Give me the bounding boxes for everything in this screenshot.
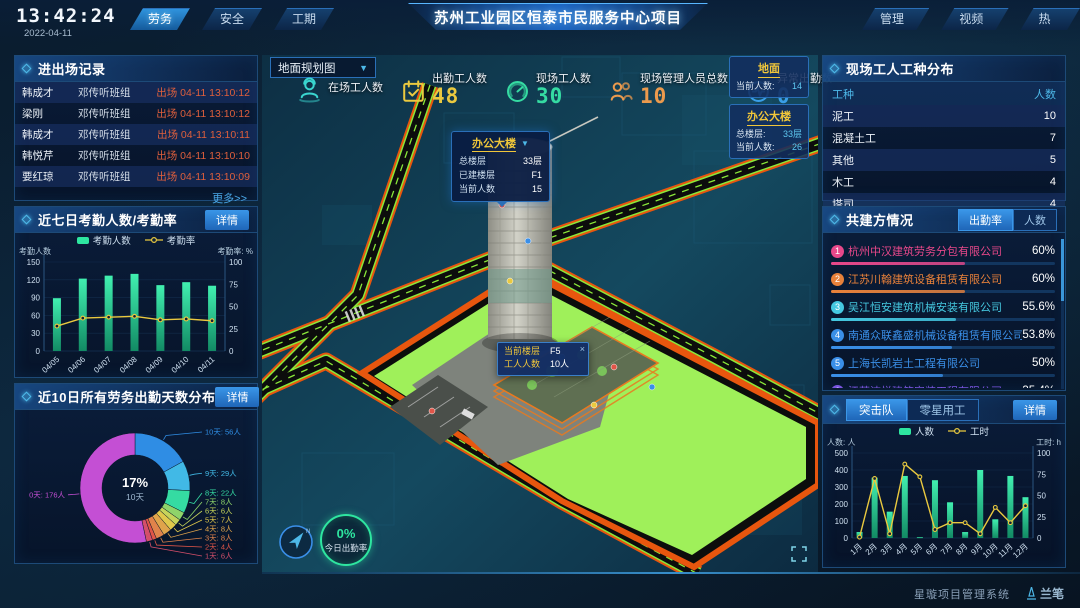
compass-control[interactable]: N xyxy=(277,523,315,561)
tooltip-value: F5 xyxy=(550,345,561,358)
progress-track xyxy=(831,346,1055,349)
svg-text:25: 25 xyxy=(1037,513,1046,522)
svg-text:12月: 12月 xyxy=(1011,542,1030,560)
floor-tooltip[interactable]: × 当前楼层F5 工人人数10人 xyxy=(497,342,589,376)
svg-text:5月: 5月 xyxy=(909,542,924,557)
svg-text:17%: 17% xyxy=(122,475,148,490)
map-badge[interactable]: 办公大楼总楼层:33层当前人数:26 xyxy=(729,104,809,159)
table-row[interactable]: 韩成才邓传听班组出场 04-11 13:10:11 xyxy=(15,124,257,145)
partner-tab[interactable]: 人数 xyxy=(1013,209,1057,231)
vendor-logo: 兰笔 xyxy=(1026,585,1064,602)
rank-badge: 4 xyxy=(831,329,844,342)
stat-gauge: 现场工人数30 xyxy=(504,70,591,107)
rank-badge: 6 xyxy=(831,385,844,389)
svg-text:考勤率: %: 考勤率: % xyxy=(217,247,253,256)
svg-text:500: 500 xyxy=(835,449,849,458)
panel-weekly-attendance: 近七日考勤人数/考勤率 详情 考勤人数考勤率 03060901201500255… xyxy=(14,206,258,378)
popup-row-value: F1 xyxy=(531,168,542,182)
badge-row: 当前人数:14 xyxy=(736,80,802,93)
svg-text:04/08: 04/08 xyxy=(118,354,139,374)
svg-text:0天: 176人: 0天: 176人 xyxy=(29,490,65,499)
svg-text:4月: 4月 xyxy=(894,542,909,557)
legend-item: 考勤人数 xyxy=(77,233,131,247)
popup-row-value: 15 xyxy=(532,182,542,196)
company-percentage: 53.8% xyxy=(1022,329,1055,341)
table-row[interactable]: 泥工10 xyxy=(823,105,1065,127)
worker-marker xyxy=(429,408,435,414)
progress-track xyxy=(831,262,1055,265)
scrollbar[interactable] xyxy=(1061,239,1064,389)
worker-icon xyxy=(296,76,323,103)
svg-text:200: 200 xyxy=(835,500,849,509)
partners-list: 1杭州中汉建筑劳务分包有限公司60%2江苏川翰建筑设备租赁有限公司60%3吴江恒… xyxy=(823,233,1065,388)
svg-text:25: 25 xyxy=(229,325,238,334)
company-name[interactable]: 南通众联鑫盛机械设备租赁有限公司 xyxy=(848,327,1022,343)
popup-row-value: 33层 xyxy=(523,154,542,168)
clock-time: 13:42:24 xyxy=(16,5,116,27)
svg-text:11月: 11月 xyxy=(997,542,1015,560)
svg-text:50: 50 xyxy=(229,303,238,312)
more-link[interactable]: 更多>> xyxy=(15,190,247,206)
svg-text:75: 75 xyxy=(1037,470,1046,479)
worker-marker xyxy=(525,238,531,244)
gauge-icon xyxy=(504,78,531,105)
panel-title: 现场工人工种分布 xyxy=(846,59,954,78)
table-row[interactable]: 要红琼邓传听班组出场 04-11 13:10:09 xyxy=(15,166,257,187)
list-item[interactable]: 2江苏川翰建筑设备租赁有限公司60% xyxy=(831,271,1055,293)
calendar-check-icon xyxy=(400,78,427,105)
team-tabs: 突击队零星用工 xyxy=(846,399,979,421)
table-row[interactable]: 混凝土工7 xyxy=(823,127,1065,149)
svg-text:6月: 6月 xyxy=(924,542,939,557)
svg-text:04/07: 04/07 xyxy=(92,354,113,374)
header-tabs-right: 管理行为视频监控热力图 xyxy=(862,8,1080,30)
list-item[interactable]: 5上海长凯岩土工程有限公司50% xyxy=(831,355,1055,377)
svg-text:8天: 22人: 8天: 22人 xyxy=(205,489,237,498)
tooltip-value: 10人 xyxy=(550,358,569,371)
gauge-label: 今日出勤率 xyxy=(325,542,368,554)
trades-table: 工种人数泥工10混凝土工7其他5木工4塔司4 xyxy=(823,82,1065,215)
svg-text:04/11: 04/11 xyxy=(196,354,217,374)
diamond-icon xyxy=(830,64,840,74)
svg-text:300: 300 xyxy=(835,483,849,492)
panel-teams: 突击队零星用工 详情 人数工时 010020030040050002550751… xyxy=(822,395,1066,568)
records-table: 韩成才邓传听班组出场 04-11 13:10:12梁刚邓传听班组出场 04-11… xyxy=(15,82,257,187)
clock: 13:42:24 2022-04-11 xyxy=(16,5,116,39)
svg-text:90: 90 xyxy=(31,294,40,303)
svg-text:100: 100 xyxy=(835,517,849,526)
worker-marker xyxy=(591,402,597,408)
svg-text:50: 50 xyxy=(1037,492,1046,501)
clock-date: 2022-04-11 xyxy=(24,28,116,39)
svg-text:10月: 10月 xyxy=(981,542,1000,560)
badge-row: 当前人数:26 xyxy=(736,141,802,154)
map-badge[interactable]: 地面当前人数:14 xyxy=(729,56,809,98)
tooltip-label: 当前楼层 xyxy=(504,345,550,358)
svg-text:04/06: 04/06 xyxy=(66,354,87,374)
company-name[interactable]: 杭州中汉建筑劳务分包有限公司 xyxy=(848,243,1032,259)
popup-row-label: 已建楼层 xyxy=(459,168,495,182)
svg-text:N: N xyxy=(306,529,310,535)
header-tab[interactable]: 视频监控 xyxy=(941,8,1008,30)
header-tab[interactable]: 安全 xyxy=(202,8,262,30)
page-title: 苏州工业园区恒泰市民服务中心项目 xyxy=(434,7,682,28)
svg-text:75: 75 xyxy=(229,280,238,289)
svg-text:100: 100 xyxy=(229,258,243,267)
company-percentage: 55.6% xyxy=(1022,301,1055,313)
list-item[interactable]: 6江苏洁悦建筑安装工程有限公司35.4% xyxy=(831,383,1055,388)
panel-title: 近10日所有劳务出勤天数分布 xyxy=(38,387,215,406)
svg-text:10天: 56人: 10天: 56人 xyxy=(205,428,241,437)
team-tab[interactable]: 零星用工 xyxy=(907,399,979,421)
svg-text:04/09: 04/09 xyxy=(144,354,165,374)
rank-badge: 5 xyxy=(831,357,844,370)
diamond-icon xyxy=(830,405,840,415)
panel-entry-exit-records: 进出场记录 韩成才邓传听班组出场 04-11 13:10:12梁刚邓传听班组出场… xyxy=(14,55,258,201)
stat-value: 48 xyxy=(432,86,487,107)
panel-title: 共建方情况 xyxy=(846,210,914,229)
progress-track xyxy=(831,290,1055,293)
svg-text:4天: 8人: 4天: 8人 xyxy=(205,525,233,534)
svg-text:04/05: 04/05 xyxy=(40,354,61,374)
svg-text:150: 150 xyxy=(27,258,41,267)
building-popup[interactable]: 办公大楼 ▼ 总楼层33层 已建楼层F1 当前人数15 xyxy=(451,131,550,202)
svg-text:120: 120 xyxy=(27,276,41,285)
diamond-icon xyxy=(22,64,32,74)
svg-text:9天: 29人: 9天: 29人 xyxy=(205,469,237,478)
svg-text:1月: 1月 xyxy=(849,542,864,557)
stat-value: 10 xyxy=(640,86,728,107)
header-tab[interactable]: 管理行为 xyxy=(862,8,929,30)
attendance-chart: 03060901201500255075100考勤人数考勤率: %04/0504… xyxy=(17,247,255,375)
building-popup-title[interactable]: 办公大楼 xyxy=(472,135,516,152)
detail-button[interactable]: 详情 xyxy=(1013,400,1057,420)
company-percentage: 35.4% xyxy=(1022,385,1055,388)
svg-text:7天: 8人: 7天: 8人 xyxy=(205,498,233,507)
svg-text:04/10: 04/10 xyxy=(170,354,191,374)
header-tab[interactable]: 劳务 xyxy=(130,8,190,30)
rank-badge: 3 xyxy=(831,301,844,314)
footer: 星璇项目管理系统 兰笔 xyxy=(914,585,1064,602)
badge-row: 总楼层:33层 xyxy=(736,128,802,141)
stat-value: 30 xyxy=(536,86,591,107)
table-header: 工种人数 xyxy=(823,82,1065,105)
teams-chart: 01002003004005000255075100人数: 人工时: h1月2月… xyxy=(825,438,1063,562)
svg-text:2月: 2月 xyxy=(864,542,879,557)
detail-button[interactable]: 详情 xyxy=(205,210,249,230)
svg-text:3月: 3月 xyxy=(879,542,894,557)
company-percentage: 60% xyxy=(1032,273,1055,285)
svg-text:30: 30 xyxy=(31,329,40,338)
company-percentage: 50% xyxy=(1032,357,1055,369)
company-name[interactable]: 江苏洁悦建筑安装工程有限公司 xyxy=(848,383,1022,388)
vendor-logo-text: 兰笔 xyxy=(1040,585,1064,602)
worker-marker xyxy=(649,384,655,390)
list-item[interactable]: 4南通众联鑫盛机械设备租赁有限公司53.8% xyxy=(831,327,1055,349)
close-icon[interactable]: × xyxy=(580,344,585,354)
panel-trade-distribution: 现场工人工种分布 工种人数泥工10混凝土工7其他5木工4塔司4 xyxy=(822,55,1066,201)
svg-text:0: 0 xyxy=(36,347,41,356)
chart-legend: 人数工时 xyxy=(823,424,1065,438)
legend-item: 人数 xyxy=(899,424,934,438)
panel-partners: 共建方情况 出勤率人数 1杭州中汉建筑劳务分包有限公司60%2江苏川翰建筑设备租… xyxy=(822,206,1066,391)
svg-text:5天: 7人: 5天: 7人 xyxy=(205,516,233,525)
header-tab[interactable]: 热力图 xyxy=(1021,8,1080,30)
table-row[interactable]: 韩悦芹邓传听班组出场 04-11 13:10:10 xyxy=(15,145,257,166)
header-tabs-left: 劳务安全工期 xyxy=(130,8,334,30)
stat-worker: 在场工人数 xyxy=(296,70,383,103)
distribution-donut-chart: 10天: 56人9天: 29人8天: 22人7天: 8人6天: 6人5天: 7人… xyxy=(17,412,255,562)
rank-badge: 1 xyxy=(831,245,844,258)
table-row[interactable]: 韩成才邓传听班组出场 04-11 13:10:12 xyxy=(15,82,257,103)
svg-text:10天: 10天 xyxy=(126,492,144,502)
svg-text:3天: 8人: 3天: 8人 xyxy=(205,534,233,543)
svg-text:0: 0 xyxy=(1037,534,1042,543)
table-row[interactable]: 木工4 xyxy=(823,171,1065,193)
list-item[interactable]: 3吴江恒安建筑机械安装有限公司55.6% xyxy=(831,299,1055,321)
svg-text:1天: 6人: 1天: 6人 xyxy=(205,552,233,561)
stat-calendar-check: 出勤工人数48 xyxy=(400,70,487,107)
worker-marker xyxy=(611,364,617,370)
stat-people: 现场管理人员总数10 xyxy=(608,70,728,107)
header-bar: 13:42:24 2022-04-11 劳务安全工期 苏州工业园区恒泰市民服务中… xyxy=(0,0,1080,46)
company-name[interactable]: 吴江恒安建筑机械安装有限公司 xyxy=(848,299,1022,315)
header-tab[interactable]: 工期 xyxy=(274,8,334,30)
svg-text:人数: 人: 人数: 人 xyxy=(827,438,855,447)
chart-legend: 考勤人数考勤率 xyxy=(15,233,257,247)
map-badges: 地面当前人数:14办公大楼总楼层:33层当前人数:26 xyxy=(729,56,809,159)
system-name: 星璇项目管理系统 xyxy=(914,586,1010,602)
svg-text:8月: 8月 xyxy=(954,542,969,557)
team-tab[interactable]: 突击队 xyxy=(846,399,907,421)
rank-badge: 2 xyxy=(831,273,844,286)
svg-text:6天: 6人: 6天: 6人 xyxy=(205,507,233,516)
diamond-icon xyxy=(830,215,840,225)
svg-text:400: 400 xyxy=(835,466,849,475)
worker-marker xyxy=(507,278,513,284)
panel-title: 进出场记录 xyxy=(38,59,106,78)
fullscreen-icon[interactable] xyxy=(791,546,807,562)
panel-title: 近七日考勤人数/考勤率 xyxy=(38,210,177,229)
svg-text:0: 0 xyxy=(844,534,849,543)
diamond-icon xyxy=(22,392,32,402)
stat-label: 在场工人数 xyxy=(328,79,383,95)
tooltip-label: 工人人数 xyxy=(504,358,550,371)
panel-attendance-days-distribution: 近10日所有劳务出勤天数分布 详情 10天: 56人9天: 29人8天: 22人… xyxy=(14,383,258,564)
diamond-icon xyxy=(22,215,32,225)
popup-row-label: 总楼层 xyxy=(459,154,486,168)
svg-text:工时: h: 工时: h xyxy=(1036,438,1061,447)
partner-tabs: 出勤率人数 xyxy=(958,209,1057,231)
company-name[interactable]: 上海长凯岩土工程有限公司 xyxy=(848,355,1032,371)
chevron-down-icon[interactable]: ▼ xyxy=(521,139,529,148)
people-icon xyxy=(608,78,635,105)
table-row[interactable]: 梁刚邓传听班组出场 04-11 13:10:12 xyxy=(15,103,257,124)
list-item[interactable]: 1杭州中汉建筑劳务分包有限公司60% xyxy=(831,243,1055,265)
popup-row-label: 当前人数 xyxy=(459,182,495,196)
svg-text:7月: 7月 xyxy=(939,542,954,557)
gauge-value: 0% xyxy=(337,526,356,541)
svg-text:考勤人数: 考勤人数 xyxy=(19,247,51,256)
company-percentage: 60% xyxy=(1032,245,1055,257)
detail-button[interactable]: 详情 xyxy=(215,387,259,407)
title-banner: 苏州工业园区恒泰市民服务中心项目 xyxy=(408,3,708,30)
legend-item: 工时 xyxy=(948,424,989,438)
svg-text:100: 100 xyxy=(1037,449,1051,458)
company-name[interactable]: 江苏川翰建筑设备租赁有限公司 xyxy=(848,271,1032,287)
legend-item: 考勤率 xyxy=(145,233,196,247)
bottom-divider xyxy=(262,572,1080,574)
partner-tab[interactable]: 出勤率 xyxy=(958,209,1013,231)
logo-tower-icon xyxy=(1026,587,1037,600)
progress-track xyxy=(831,318,1055,321)
progress-track xyxy=(831,374,1055,377)
svg-text:0: 0 xyxy=(229,347,234,356)
svg-text:60: 60 xyxy=(31,311,40,320)
badge-title[interactable]: 办公大楼 xyxy=(747,108,791,126)
badge-title[interactable]: 地面 xyxy=(758,60,780,78)
table-row[interactable]: 其他5 xyxy=(823,149,1065,171)
svg-text:2天: 4人: 2天: 4人 xyxy=(205,543,233,552)
today-attendance-gauge: 0% 今日出勤率 xyxy=(320,514,372,566)
